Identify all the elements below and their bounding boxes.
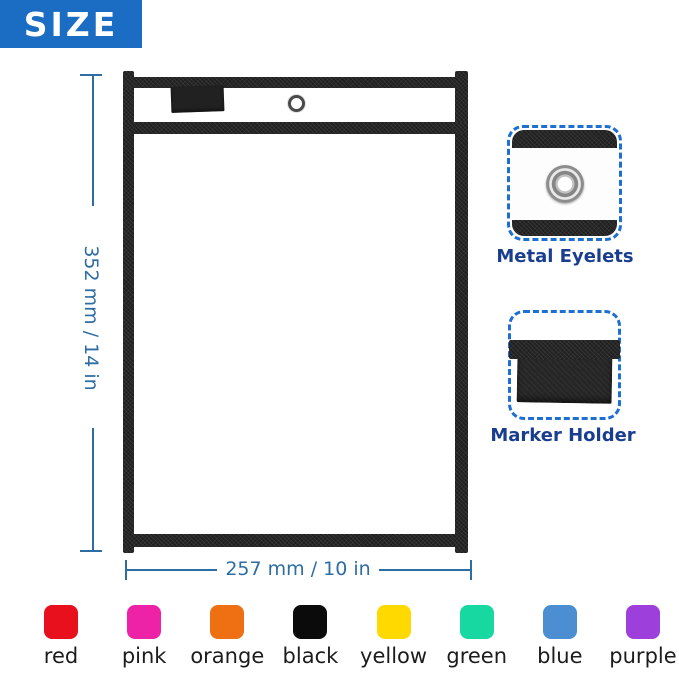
color-swatch-label: green	[446, 646, 507, 667]
color-swatch	[543, 605, 577, 639]
height-dimension-label: 352 mm / 14 in	[80, 243, 102, 393]
metal-eyelets-label: Metal Eyelets	[480, 246, 650, 267]
color-swatch-green: green	[442, 605, 512, 667]
color-swatch	[210, 605, 244, 639]
color-swatch-yellow: yellow	[359, 605, 429, 667]
marker-holder-closeup-strip	[509, 340, 620, 359]
width-dimension-line-right	[379, 569, 470, 571]
marker-holder-label: Marker Holder	[478, 425, 648, 446]
color-swatch	[127, 605, 161, 639]
color-swatch	[460, 605, 494, 639]
width-dimension-label: 257 mm / 10 in	[217, 558, 379, 580]
color-swatch-blue: blue	[525, 605, 595, 667]
height-dimension-top-cap	[80, 74, 102, 76]
pocket-right-edge	[455, 71, 468, 553]
color-swatch-pink: pink	[109, 605, 179, 667]
color-swatch-label: black	[283, 646, 339, 667]
color-swatch-label: orange	[190, 646, 264, 667]
eyelet-closeup-body	[512, 148, 617, 220]
color-swatch-row: red pink orange black yellow green blue …	[26, 605, 678, 667]
height-dimension-line-upper	[92, 76, 94, 206]
pocket-left-edge	[123, 71, 134, 553]
marker-holder-tab	[171, 85, 225, 113]
color-swatch	[293, 605, 327, 639]
metal-eyelets-callout	[507, 125, 622, 241]
color-swatch-label: yellow	[360, 646, 427, 667]
product-size-infographic: SIZE 352 mm / 14 in 257 mm / 10 in Metal…	[0, 0, 679, 673]
grommet-icon	[546, 165, 584, 203]
marker-holder-closeup-tab	[517, 356, 613, 404]
color-swatch-red: red	[26, 605, 96, 667]
color-swatch-purple: purple	[608, 605, 678, 667]
color-swatch-orange: orange	[192, 605, 262, 667]
height-dimension-bottom-cap	[80, 550, 102, 552]
color-swatch-label: pink	[122, 646, 167, 667]
color-swatch-label: blue	[537, 646, 582, 667]
metal-eyelet-icon	[288, 95, 305, 112]
eyelet-closeup-top-band	[512, 130, 617, 148]
height-dimension-line-lower	[92, 428, 94, 550]
width-dimension-right-tick	[470, 560, 472, 580]
eyelet-closeup-bottom-band	[512, 220, 617, 236]
size-banner-label: SIZE	[24, 5, 119, 44]
color-swatch	[377, 605, 411, 639]
color-swatch	[44, 605, 78, 639]
width-dimension-line-left	[127, 569, 217, 571]
size-banner: SIZE	[0, 0, 142, 48]
color-swatch-label: purple	[609, 646, 676, 667]
pocket-bottom-edge	[123, 534, 468, 547]
color-swatch-label: red	[44, 646, 78, 667]
color-swatch	[626, 605, 660, 639]
pocket-header-divider	[123, 122, 468, 134]
color-swatch-black: black	[275, 605, 345, 667]
eyelet-closeup	[512, 130, 617, 236]
